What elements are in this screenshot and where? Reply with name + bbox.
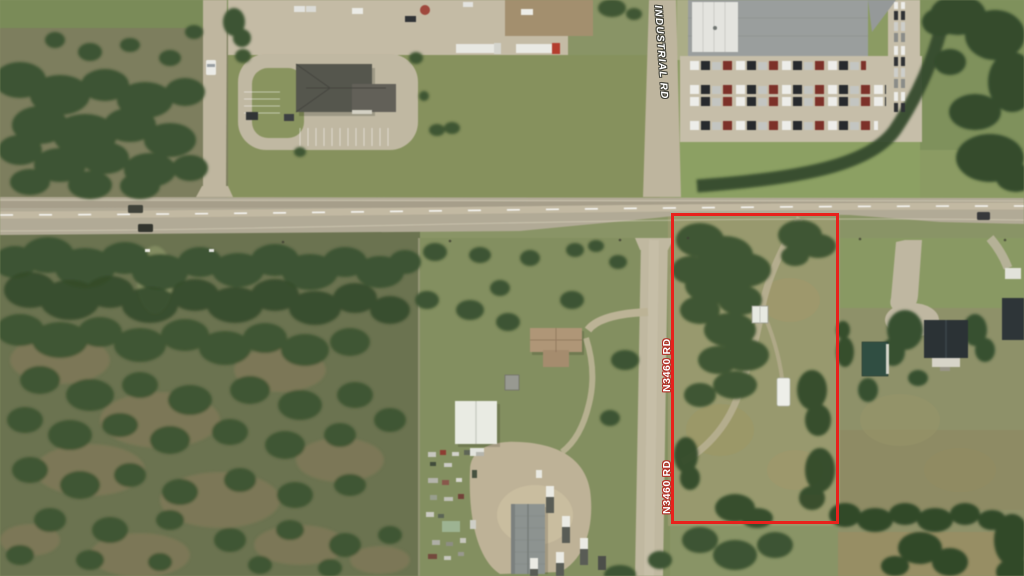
road-label-n3460-rd-lower: N3460 RD <box>661 460 673 514</box>
parcel-overlay <box>0 0 1024 576</box>
road-label-n3460-rd-upper: N3460 RD <box>661 338 673 392</box>
satellite-map: INDUSTRIAL RD N3460 RD N3460 RD <box>0 0 1024 576</box>
parcel-boundary <box>673 215 838 523</box>
